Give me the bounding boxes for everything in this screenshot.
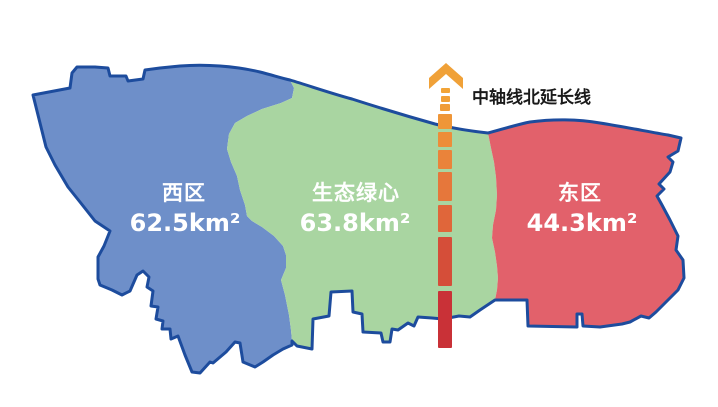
axis-dash — [438, 291, 452, 348]
region-green-heart-area: 63.8km² — [300, 209, 411, 237]
axis-dash — [441, 88, 450, 93]
region-green-heart-name: 生态绿心 — [312, 181, 400, 205]
axis-dash — [438, 205, 452, 232]
north-arrow-icon — [429, 63, 463, 89]
region-west-area: 62.5km² — [130, 209, 241, 237]
region-east-name: 东区 — [558, 181, 602, 205]
axis-dash — [438, 114, 452, 129]
axis-dash — [441, 96, 450, 102]
planning-map: 中轴线北延长线 西区 62.5km² 生态绿心 63.8km² 东区 44.3k… — [0, 0, 718, 407]
axis-dash — [440, 104, 450, 111]
axis-dash — [438, 150, 452, 169]
axis-dash — [438, 237, 452, 286]
axis-dash — [438, 172, 452, 201]
axis-label: 中轴线北延长线 — [472, 87, 591, 108]
planning-map-canvas: 中轴线北延长线 西区 62.5km² 生态绿心 63.8km² 东区 44.3k… — [0, 0, 718, 407]
region-west-name: 西区 — [162, 181, 206, 205]
region-east-area: 44.3km² — [527, 209, 638, 237]
axis-dash — [438, 132, 452, 147]
